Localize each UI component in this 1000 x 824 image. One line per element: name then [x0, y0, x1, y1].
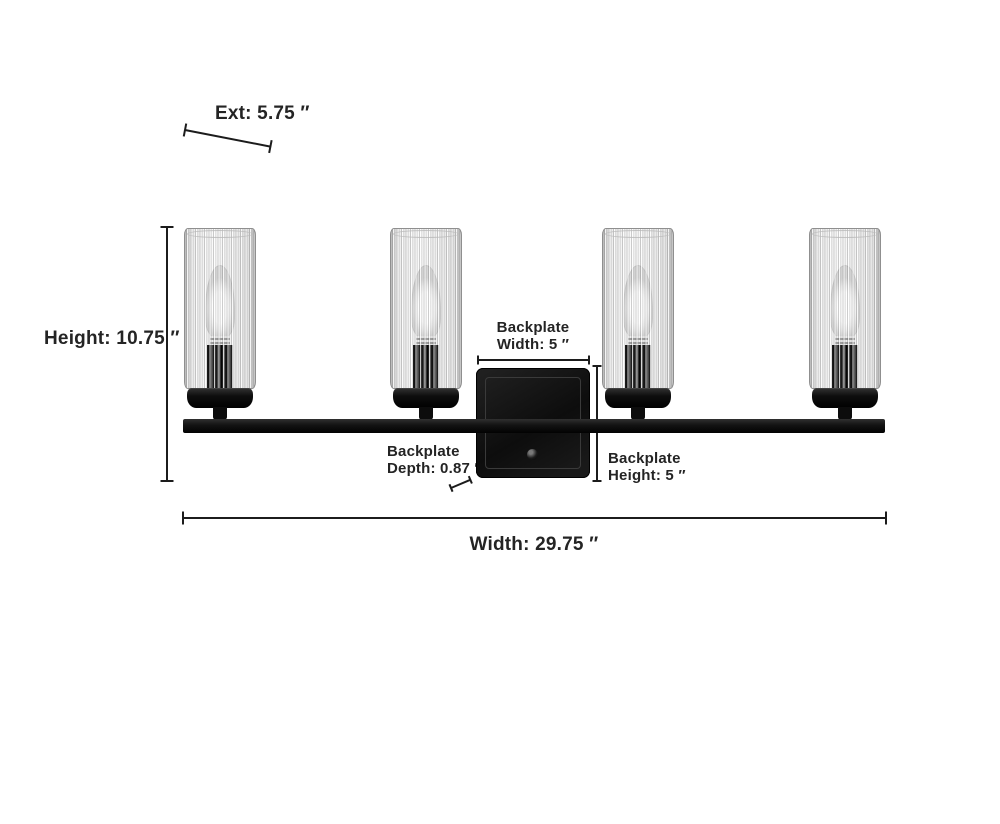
shade-base — [812, 388, 878, 408]
lamp-2 — [390, 228, 462, 419]
glass-shade — [602, 228, 674, 389]
bulb-base-rings — [835, 336, 855, 346]
backplate-depth-label: Backplate Depth: 0.87 ″ — [387, 444, 482, 477]
backplate-depth-label-line1: Backplate — [387, 444, 482, 461]
lamp-1 — [184, 228, 256, 419]
fixture-bar — [183, 419, 885, 433]
lamp-3 — [602, 228, 674, 419]
backplate-height-label-line2: Height: 5 ″ — [608, 468, 686, 485]
width-label: Width: 29.75 ″ — [384, 534, 684, 556]
backplate-screw — [527, 449, 538, 460]
ext-dimension-line — [185, 129, 271, 148]
bulb-base-rings — [628, 336, 648, 346]
glass-shade — [390, 228, 462, 389]
height-label: Height: 10.75 ″ — [44, 328, 180, 350]
glass-shade — [184, 228, 256, 389]
glass-shade — [809, 228, 881, 389]
candelabra-bulb — [830, 265, 860, 339]
candle-sleeve-socket — [832, 345, 858, 388]
backplate-height-label-line1: Backplate — [608, 451, 686, 468]
shade-base — [187, 388, 253, 408]
shade-base — [393, 388, 459, 408]
candelabra-bulb — [623, 265, 653, 339]
bulb-base-rings — [416, 336, 436, 346]
backplate-width-label: Backplate Width: 5 ″ — [476, 320, 590, 353]
backplate-height-label: Backplate Height: 5 ″ — [608, 451, 686, 484]
diagram-canvas: Ext: 5.75 ″ Height: 10.75 ″ Width: 29.75… — [0, 0, 1000, 824]
candle-sleeve-socket — [413, 345, 439, 388]
width-dimension-line — [183, 517, 886, 519]
candle-sleeve-socket — [625, 345, 651, 388]
backplate-depth-label-line2: Depth: 0.87 ″ — [387, 461, 482, 478]
backplate-width-label-line2: Width: 5 ″ — [476, 337, 590, 354]
ext-label: Ext: 5.75 ″ — [215, 103, 310, 125]
candle-sleeve-socket — [207, 345, 233, 388]
lamp-4 — [809, 228, 881, 419]
shade-base — [605, 388, 671, 408]
backplate-depth-dimension-line — [451, 479, 471, 489]
candelabra-bulb — [205, 265, 235, 339]
candelabra-bulb — [411, 265, 441, 339]
height-dimension-line — [166, 227, 168, 481]
bulb-base-rings — [210, 336, 230, 346]
backplate-width-label-line1: Backplate — [476, 320, 590, 337]
backplate-width-dimension-line — [478, 359, 589, 361]
